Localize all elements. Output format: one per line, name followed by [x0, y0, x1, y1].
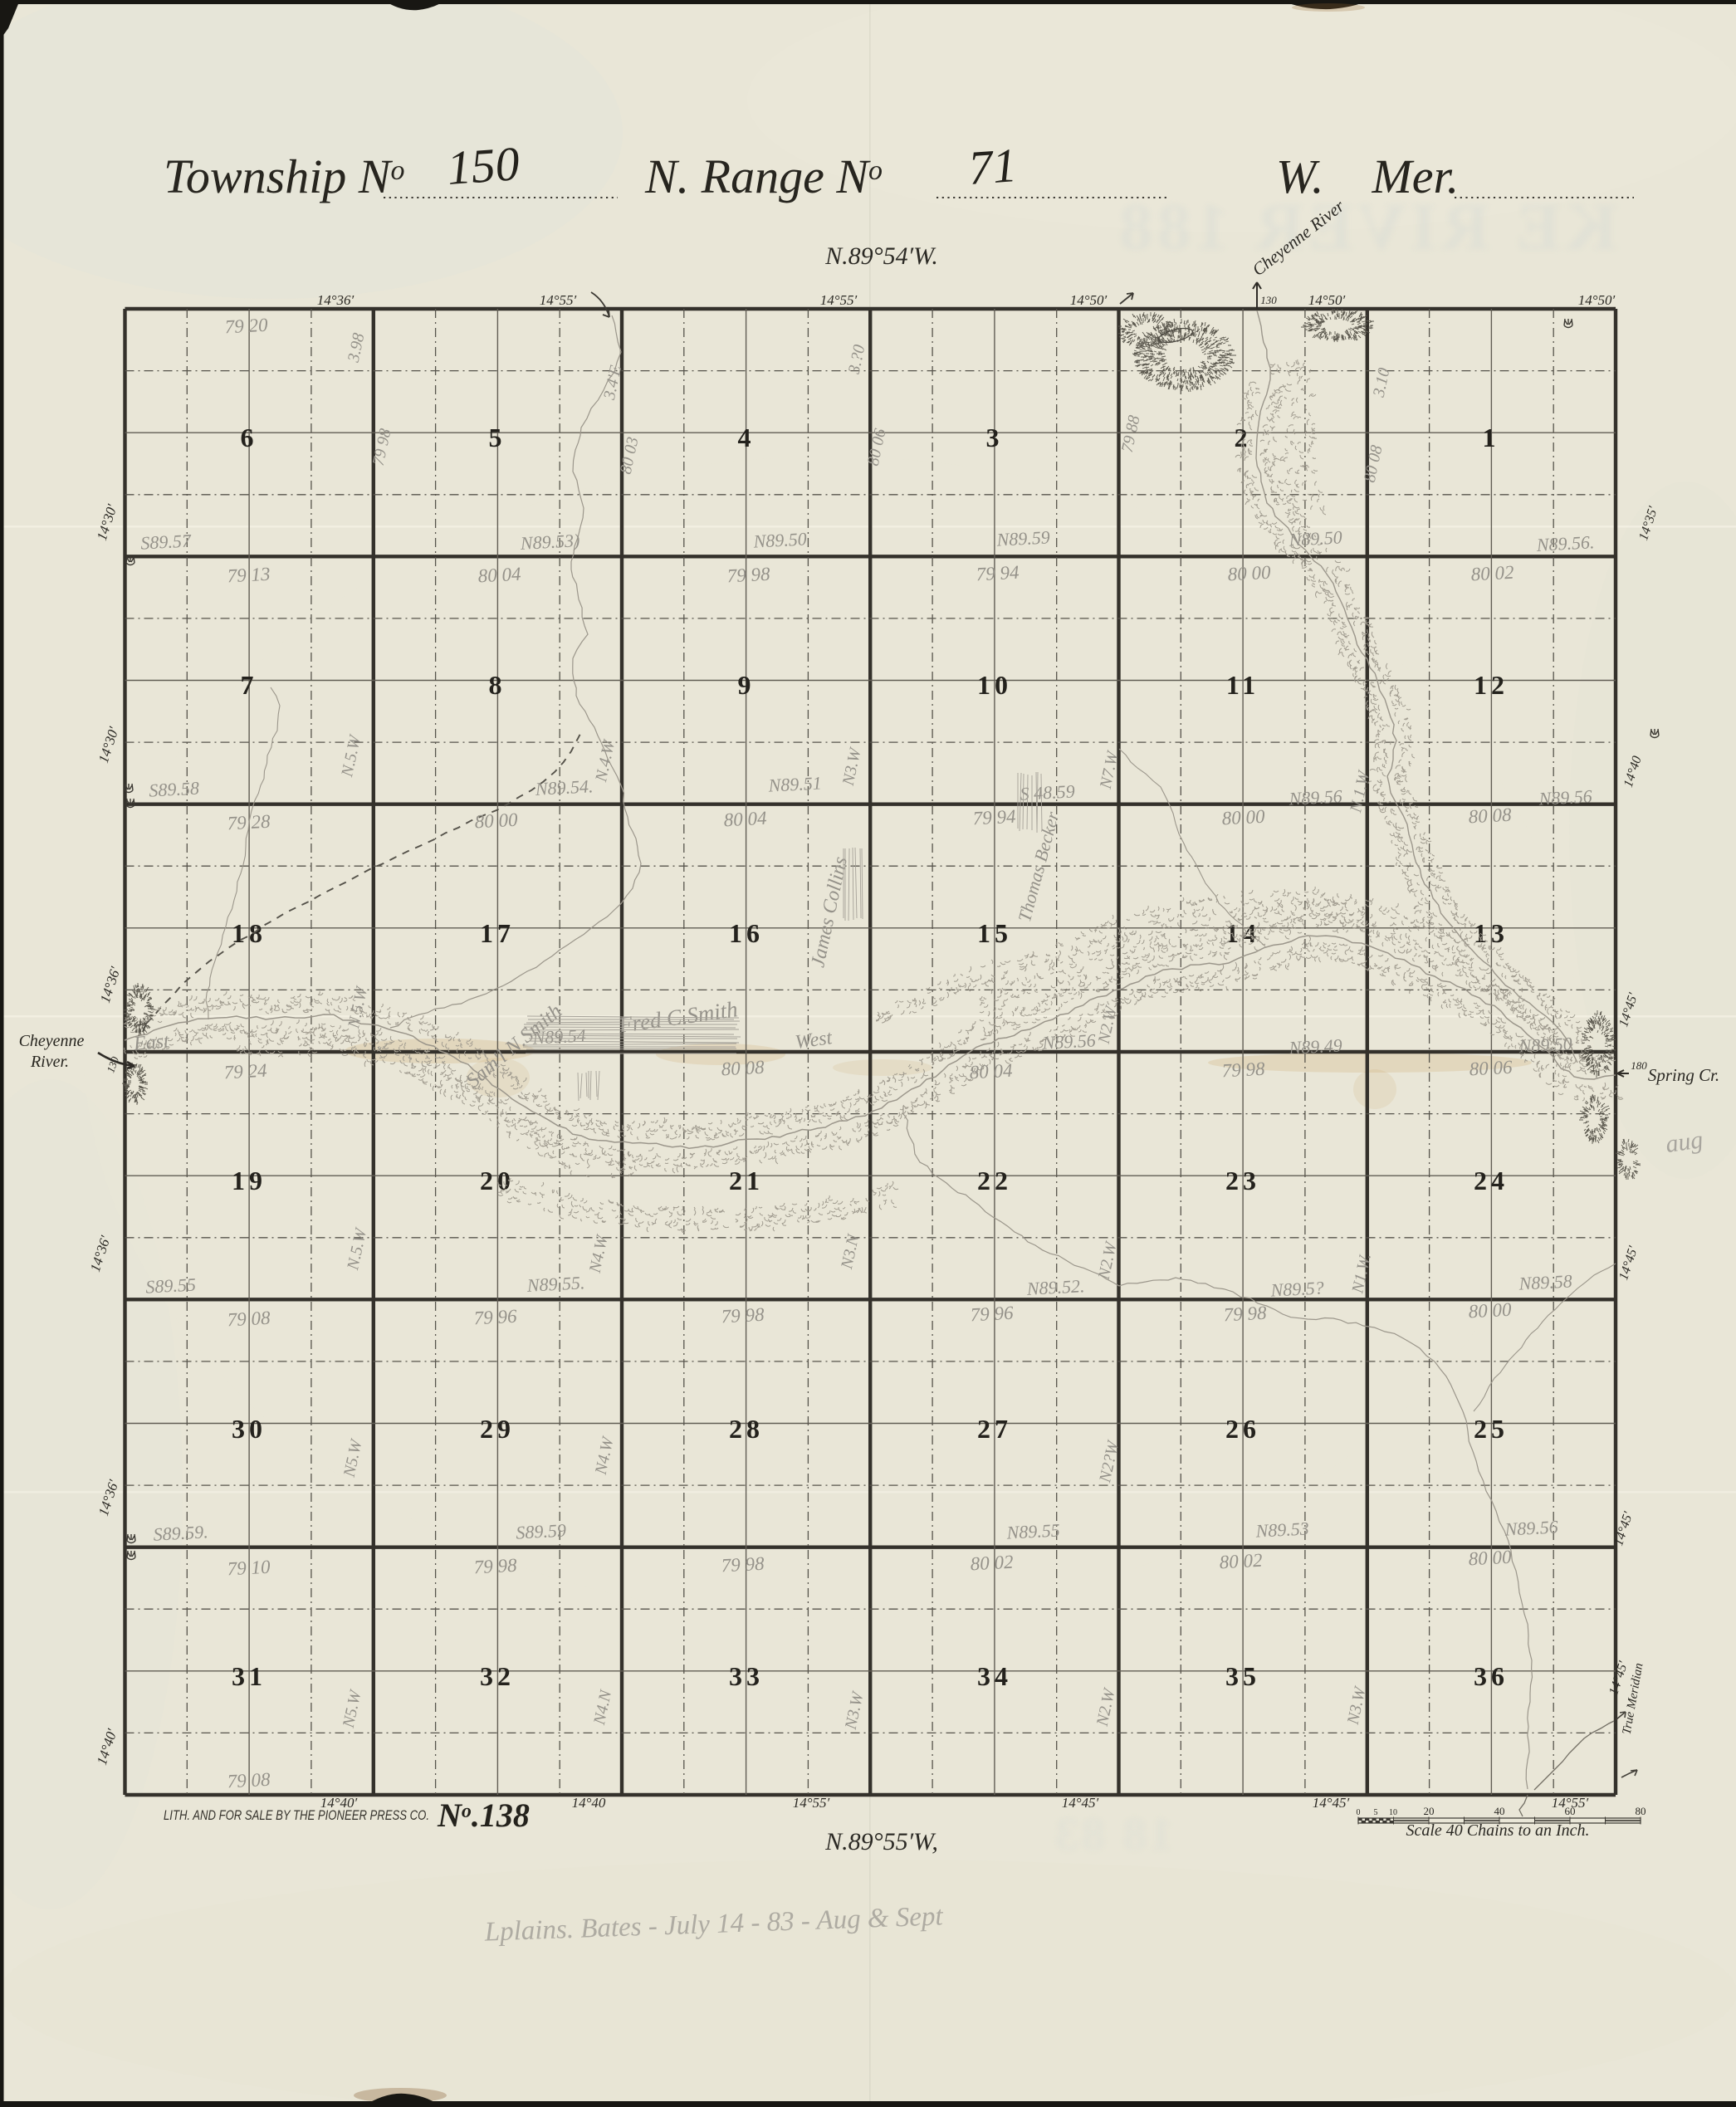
svg-text:N89.50: N89.50: [1288, 526, 1342, 550]
svg-text:8: 8: [489, 670, 506, 700]
svg-text:80 04: 80 04: [477, 564, 521, 587]
svg-text:80 02: 80 02: [1470, 562, 1514, 585]
svg-text:80 06: 80 06: [1469, 1057, 1513, 1080]
svg-text:N. Range No: N. Range No: [644, 149, 883, 203]
svg-text:aug: aug: [1664, 1126, 1704, 1158]
svg-text:79 20: 79 20: [224, 315, 268, 338]
svg-text:13: 13: [1474, 918, 1509, 948]
svg-text:80 04: 80 04: [969, 1060, 1013, 1083]
svg-text:N89.56.: N89.56.: [1535, 531, 1595, 555]
svg-text:N.89°54′W.: N.89°54′W.: [824, 242, 938, 270]
svg-text:60: 60: [1565, 1805, 1576, 1817]
svg-text:79 98: 79 98: [1221, 1058, 1265, 1082]
svg-text:71: 71: [966, 138, 1018, 195]
svg-text:30: 30: [232, 1414, 267, 1444]
svg-text:24: 24: [1474, 1166, 1509, 1195]
svg-text:40: 40: [1494, 1805, 1505, 1817]
svg-text:80 02: 80 02: [1219, 1550, 1263, 1573]
svg-text:79 98: 79 98: [721, 1553, 765, 1577]
svg-text:22: 22: [977, 1166, 1012, 1195]
svg-text:79 96: 79 96: [970, 1303, 1014, 1326]
svg-text:79 96: 79 96: [473, 1306, 517, 1329]
svg-text:No.138: No.138: [437, 1797, 530, 1834]
svg-text:Spring Cr.: Spring Cr.: [1648, 1065, 1719, 1085]
svg-text:14°45′: 14°45′: [1313, 1795, 1350, 1811]
svg-text:Cheyenne: Cheyenne: [19, 1032, 85, 1050]
svg-text:17: 17: [480, 918, 515, 948]
svg-text:N89.51: N89.51: [767, 772, 822, 795]
svg-text:0: 0: [1357, 1808, 1361, 1817]
svg-text:36: 36: [1474, 1661, 1509, 1691]
svg-text:31: 31: [232, 1661, 267, 1691]
svg-text:14°55′: 14°55′: [540, 292, 577, 308]
svg-text:35: 35: [1225, 1661, 1260, 1691]
svg-text:N89.53: N89.53: [1254, 1518, 1309, 1541]
svg-text:River.: River.: [30, 1053, 69, 1071]
svg-text:3: 3: [986, 423, 1004, 452]
svg-text:80 00: 80 00: [1468, 1299, 1512, 1322]
svg-text:N89.50: N89.50: [752, 528, 807, 551]
svg-text:27: 27: [977, 1414, 1012, 1444]
svg-text:N89.56: N89.56: [1288, 785, 1342, 809]
svg-text:79 24: 79 24: [223, 1060, 267, 1083]
svg-text:1: 1: [1483, 423, 1500, 452]
svg-text:6: 6: [241, 423, 258, 452]
svg-text:5: 5: [489, 423, 506, 452]
svg-text:S89.55: S89.55: [145, 1273, 197, 1297]
svg-text:14°50′: 14°50′: [1070, 292, 1108, 308]
svg-text:N89.52.: N89.52.: [1025, 1275, 1085, 1299]
svg-text:12: 12: [1474, 670, 1509, 700]
svg-text:Scale 40 Chains to an Inch.: Scale 40 Chains to an Inch.: [1406, 1821, 1589, 1840]
svg-text:79 08: 79 08: [227, 1308, 271, 1331]
svg-text:79 28: 79 28: [227, 811, 271, 834]
svg-text:5: 5: [1374, 1808, 1378, 1817]
svg-text:14°40: 14°40: [572, 1795, 606, 1811]
svg-text:80 00: 80 00: [1227, 562, 1271, 585]
svg-text:10: 10: [1389, 1808, 1397, 1817]
svg-text:15: 15: [977, 918, 1012, 948]
svg-text:4: 4: [738, 423, 756, 452]
svg-text:S89.58: S89.58: [149, 777, 200, 800]
svg-text:80 00: 80 00: [1468, 1547, 1512, 1570]
svg-text:9: 9: [738, 670, 756, 700]
svg-text:79 98: 79 98: [721, 1304, 765, 1327]
svg-text:25: 25: [1474, 1414, 1509, 1444]
svg-text:LITH. AND FOR SALE BY THE PION: LITH. AND FOR SALE BY THE PIONEER PRESS …: [164, 1807, 429, 1823]
svg-text:34: 34: [977, 1661, 1012, 1691]
svg-text:N89.55: N89.55: [1005, 1519, 1060, 1542]
svg-text:N89.53): N89.53): [519, 530, 580, 554]
svg-text:N89.58: N89.58: [1518, 1270, 1572, 1293]
svg-text:N89.49: N89.49: [1288, 1034, 1342, 1058]
svg-text:N89.55.: N89.55.: [526, 1272, 585, 1296]
svg-text:N89.56: N89.56: [1538, 785, 1592, 809]
svg-text:16: 16: [729, 918, 764, 948]
svg-text:33: 33: [729, 1661, 764, 1691]
svg-text:N89.5?: N89.5?: [1269, 1277, 1324, 1300]
svg-text:79 98: 79 98: [473, 1555, 517, 1578]
svg-text:10: 10: [977, 670, 1012, 700]
svg-text:14°55′: 14°55′: [820, 292, 858, 308]
svg-text:N89.50: N89.50: [1518, 1033, 1572, 1056]
svg-text:80 02: 80 02: [970, 1552, 1014, 1575]
svg-text:East: East: [132, 1030, 171, 1055]
svg-text:79 94: 79 94: [976, 562, 1020, 585]
svg-text:79 98: 79 98: [726, 564, 770, 587]
svg-text:80 08: 80 08: [1468, 804, 1512, 828]
svg-text:21: 21: [729, 1166, 764, 1195]
svg-text:N.89°55′W,: N.89°55′W,: [824, 1828, 938, 1855]
svg-text:79 10: 79 10: [227, 1557, 271, 1580]
svg-text:N89.59: N89.59: [995, 526, 1050, 550]
svg-text:79 98: 79 98: [1223, 1303, 1267, 1326]
svg-text:79 08: 79 08: [227, 1769, 271, 1792]
svg-text:N89.54.: N89.54.: [534, 775, 594, 799]
svg-text:150: 150: [445, 136, 521, 195]
svg-text:S89.59: S89.59: [516, 1519, 567, 1542]
svg-text:130: 130: [1260, 294, 1277, 306]
svg-text:80: 80: [1636, 1805, 1646, 1817]
svg-text:80 00: 80 00: [474, 809, 518, 833]
svg-text:28: 28: [729, 1414, 764, 1444]
svg-text:N89.56: N89.56: [1041, 1029, 1096, 1053]
svg-text:14°36′: 14°36′: [317, 292, 355, 308]
svg-text:26: 26: [1225, 1414, 1260, 1444]
svg-text:14°45′: 14°45′: [1062, 1795, 1099, 1811]
svg-text:S89.59.: S89.59.: [153, 1521, 208, 1544]
svg-text:18 83: 18 83: [1052, 1809, 1173, 1860]
svg-text:19: 19: [232, 1166, 267, 1195]
svg-text:S89.57: S89.57: [140, 530, 193, 553]
svg-text:11: 11: [1226, 670, 1259, 700]
svg-text:W. Mer.: W. Mer.: [1276, 149, 1459, 203]
svg-text:7: 7: [241, 670, 258, 700]
svg-text:23: 23: [1225, 1166, 1260, 1195]
svg-text:32: 32: [480, 1661, 515, 1691]
svg-text:Township No: Township No: [164, 149, 405, 203]
svg-text:80 08: 80 08: [721, 1057, 765, 1080]
svg-text:18: 18: [232, 918, 267, 948]
svg-text:80 04: 80 04: [723, 808, 767, 831]
svg-text:79 94: 79 94: [972, 806, 1016, 829]
svg-text:14°50′: 14°50′: [1308, 292, 1346, 308]
svg-text:29: 29: [480, 1414, 515, 1444]
svg-text:14°55′: 14°55′: [793, 1795, 830, 1811]
svg-text:14°50′: 14°50′: [1578, 292, 1616, 308]
svg-text:180: 180: [1631, 1059, 1647, 1072]
svg-text:N89.56: N89.56: [1504, 1516, 1558, 1539]
svg-text:20: 20: [1424, 1805, 1435, 1817]
svg-text:79 13: 79 13: [227, 564, 271, 587]
svg-text:80 00: 80 00: [1221, 806, 1265, 829]
